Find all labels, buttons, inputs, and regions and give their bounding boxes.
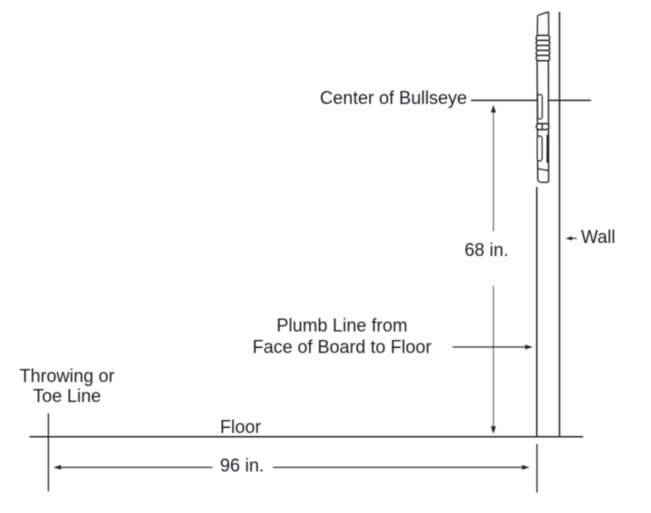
svg-text:Center of Bullseye: Center of Bullseye	[320, 88, 467, 108]
svg-text:96 in.: 96 in.	[220, 456, 264, 476]
svg-text:Toe Line: Toe Line	[33, 386, 101, 406]
svg-text:Plumb Line from: Plumb Line from	[276, 316, 407, 336]
svg-text:Throwing or: Throwing or	[19, 366, 114, 386]
svg-text:Face of Board to Floor: Face of Board to Floor	[252, 337, 431, 357]
svg-text:Wall: Wall	[581, 227, 615, 247]
svg-text:68 in.: 68 in.	[465, 240, 509, 260]
svg-text:Floor: Floor	[220, 417, 261, 437]
